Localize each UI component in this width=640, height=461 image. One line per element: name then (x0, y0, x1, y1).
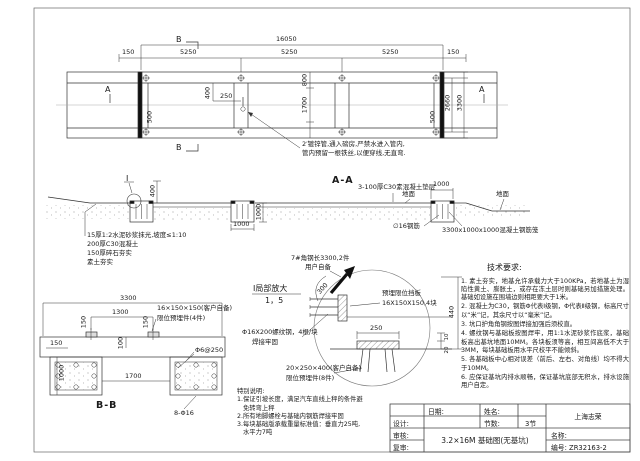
cage-note: 3300x1000x1000混凝土钢筋笼 (442, 227, 538, 234)
section-bb-title: B-B (96, 401, 117, 412)
dim-detail-250: 250 (370, 325, 382, 332)
dim-800: 800 (301, 74, 308, 86)
dim-bb-100: 100 (117, 337, 124, 349)
titleblock-title-label: 名称: (551, 430, 567, 440)
stop-plate-note-line2: 16X150X150,4块 (382, 300, 437, 307)
pipe-note-line2: 管内预留一根铁丝,以便穿线,无直弯. (302, 150, 406, 157)
dim-bb-1300: 1300 (112, 309, 129, 316)
dim-outer-width: 3300 (456, 95, 463, 112)
section-markers (110, 42, 484, 151)
dim-detail-10: 10 (444, 334, 450, 341)
rebar-note: ∅16钢筋 (393, 223, 420, 230)
section-marker-a-right: A (479, 85, 484, 94)
section-aa-title: A-A (332, 176, 354, 187)
tech-requirement-5: 5. 各基础板中心相对误差（前后、左右、对角线）均不得大于10MM。 (461, 356, 629, 373)
stirrup-note: Φ6@250 (195, 347, 223, 354)
dim-end-right: 150 (447, 49, 459, 56)
layer-note-1: 15厚1:2水泥砂浆抹光,坡度≤1:10 (87, 232, 186, 239)
dim-pipe-400: 400 (204, 87, 211, 99)
dim-inner-width: 2660 (444, 95, 451, 112)
bolt-note-line2: 焊接牢固 (252, 339, 278, 346)
bb-plate-note-line1: 16×150×150(客户自备) (157, 305, 232, 312)
special-note-2: 2.所有地脚螺栓与基础内钢筋焊接牢固 (237, 413, 387, 421)
dim-end-left: 150 (122, 49, 134, 56)
titleblock-design-label: 设计: (393, 418, 409, 428)
titleblock-number: 编号: ZR32163-2 (551, 442, 607, 452)
dim-bb-150-left: 150 (80, 316, 87, 328)
plan-view (56, 42, 508, 151)
embed-note-line2: 限位预埋件(8件) (286, 375, 334, 382)
dim-aa-1000-depth: 1000 (255, 204, 262, 221)
tech-requirement-1: 1. 素土夯实，地基允许承载力大于100KPa，若地基土为湿陷性黄土、膨胀土，或… (461, 278, 629, 303)
ground-label-2: 地面 (496, 191, 509, 198)
angle-note-line2: 用户自备 (305, 264, 331, 271)
tech-requirement-3: 3. 坑口护角角钢按图焊接加强后须校直。 (461, 321, 629, 329)
dim-total-length: 16050 (276, 36, 297, 43)
stop-plate-note-line1: 预埋限位挡板 (382, 290, 421, 297)
detail-i-marker: Ⅰ (126, 174, 128, 183)
dim-detail-20: 20 (444, 347, 450, 354)
dim-segment-3: 5250 (382, 49, 399, 56)
special-notes: 特别说明: 1.保证引坡长度，满足汽车直线上秤的条件避 免转弯上秤 2.所有地脚… (237, 388, 387, 438)
dim-bb-1700: 1700 (125, 373, 142, 380)
titleblock-drawing-title: 3.2×16M 基础图(无基坑) (424, 428, 546, 452)
titleblock-sections-label: 节数: (484, 418, 500, 428)
titleblock-company: 上海志荣 (546, 404, 630, 428)
ground-label-1: 地面 (402, 191, 415, 198)
layer-note-2: 200厚C30混凝土 (87, 241, 138, 248)
dim-detail-440: 440 (448, 306, 455, 318)
end-angle-bar-left (138, 72, 142, 138)
dim-500-left: 500 (146, 111, 153, 123)
dim-aa-1000-top: 1000 (433, 181, 450, 188)
section-marker-b-top: B (176, 35, 182, 44)
bolt-note-line1: Φ16X200螺纹钢，4根/块 (242, 329, 318, 336)
pipe-note-leader (248, 112, 300, 148)
layer-note-4: 素土夯实 (87, 259, 113, 266)
dim-bb-150-right: 150 (142, 316, 149, 328)
plan-dimensions (119, 45, 468, 138)
tech-requirement-6: 6. 应保证基坑内排水顺畅，保证基坑底部无积水，排水设施用户自定。 (461, 374, 629, 391)
detail-leaders (302, 271, 380, 373)
dim-bb-150-horiz: 150 (50, 340, 62, 347)
dim-aa-1000-bottom: 1000 (233, 221, 250, 228)
dim-segment-1: 5250 (180, 49, 197, 56)
pipe-note-line1: 2′镀锌管,通入磅房,严禁水进入管内, (302, 141, 405, 148)
detail-title-line1: Ⅰ局部放大 (253, 284, 287, 293)
bb-plate-note-line2: 限位预埋件(4件) (157, 315, 205, 322)
dim-500-right: 500 (429, 111, 436, 123)
tech-requirements-title: 技术要求: (461, 263, 629, 274)
titleblock-name-label: 姓名: (484, 406, 500, 416)
foundation-drawing-sheet: 16050 150 5250 5250 5250 150 B B A A 400… (0, 0, 640, 461)
section-marker-b-bottom: B (176, 143, 182, 152)
layer-note-3: 150厚碎石夯实 (87, 250, 132, 257)
base-plate (357, 341, 399, 349)
special-note-1b: 免转弯上秤 (237, 405, 387, 413)
titleblock-recheck-label: 复审: (393, 442, 409, 452)
detail-title-line2: 1，5 (265, 296, 283, 305)
titleblock-date-label: 日期: (428, 406, 444, 416)
tech-requirement-2: 2. 混凝土为C30，钢筋Φ代表Ⅰ级钢，Φ代表Ⅱ级钢，标高尺寸以“米”记，其余尺… (461, 303, 629, 320)
tech-requirements: 技术要求: 1. 素土夯实，地基允许承载力大于100KPa，若地基土为湿陷性黄土… (461, 263, 629, 391)
tech-requirement-4: 4. 螺纹钢与基础板按图焊牢，用1:1水泥砂浆作底浆，基础板高出基坑地面10MM… (461, 330, 629, 355)
angle-note-line1: 7#角钢长3300,2件 (291, 255, 349, 262)
cushion-note: 3-100厚C30素混凝土垫层 (358, 184, 435, 191)
dim-1700: 1700 (301, 97, 308, 114)
dim-bb-1000: 1000 (58, 365, 65, 382)
special-note-1a: 1.保证引坡长度，满足汽车直线上秤的条件避 (237, 396, 387, 404)
section-marker-a-left: A (105, 85, 110, 94)
pipe-symbol (241, 97, 245, 111)
dim-bb-3300: 3300 (120, 295, 137, 302)
titleblock-review-label: 审核: (393, 430, 409, 440)
special-note-3b: 水平力7吨 (237, 429, 387, 437)
dim-segment-2: 5250 (281, 49, 298, 56)
dim-aa-400: 400 (149, 185, 156, 197)
titleblock-sections-value: 3节 (525, 418, 536, 428)
dim-pipe-250: 250 (220, 93, 232, 100)
bar-note: 8-Φ16 (174, 410, 194, 417)
embed-note-line1: 20×250×400(客户自备) (286, 365, 361, 372)
